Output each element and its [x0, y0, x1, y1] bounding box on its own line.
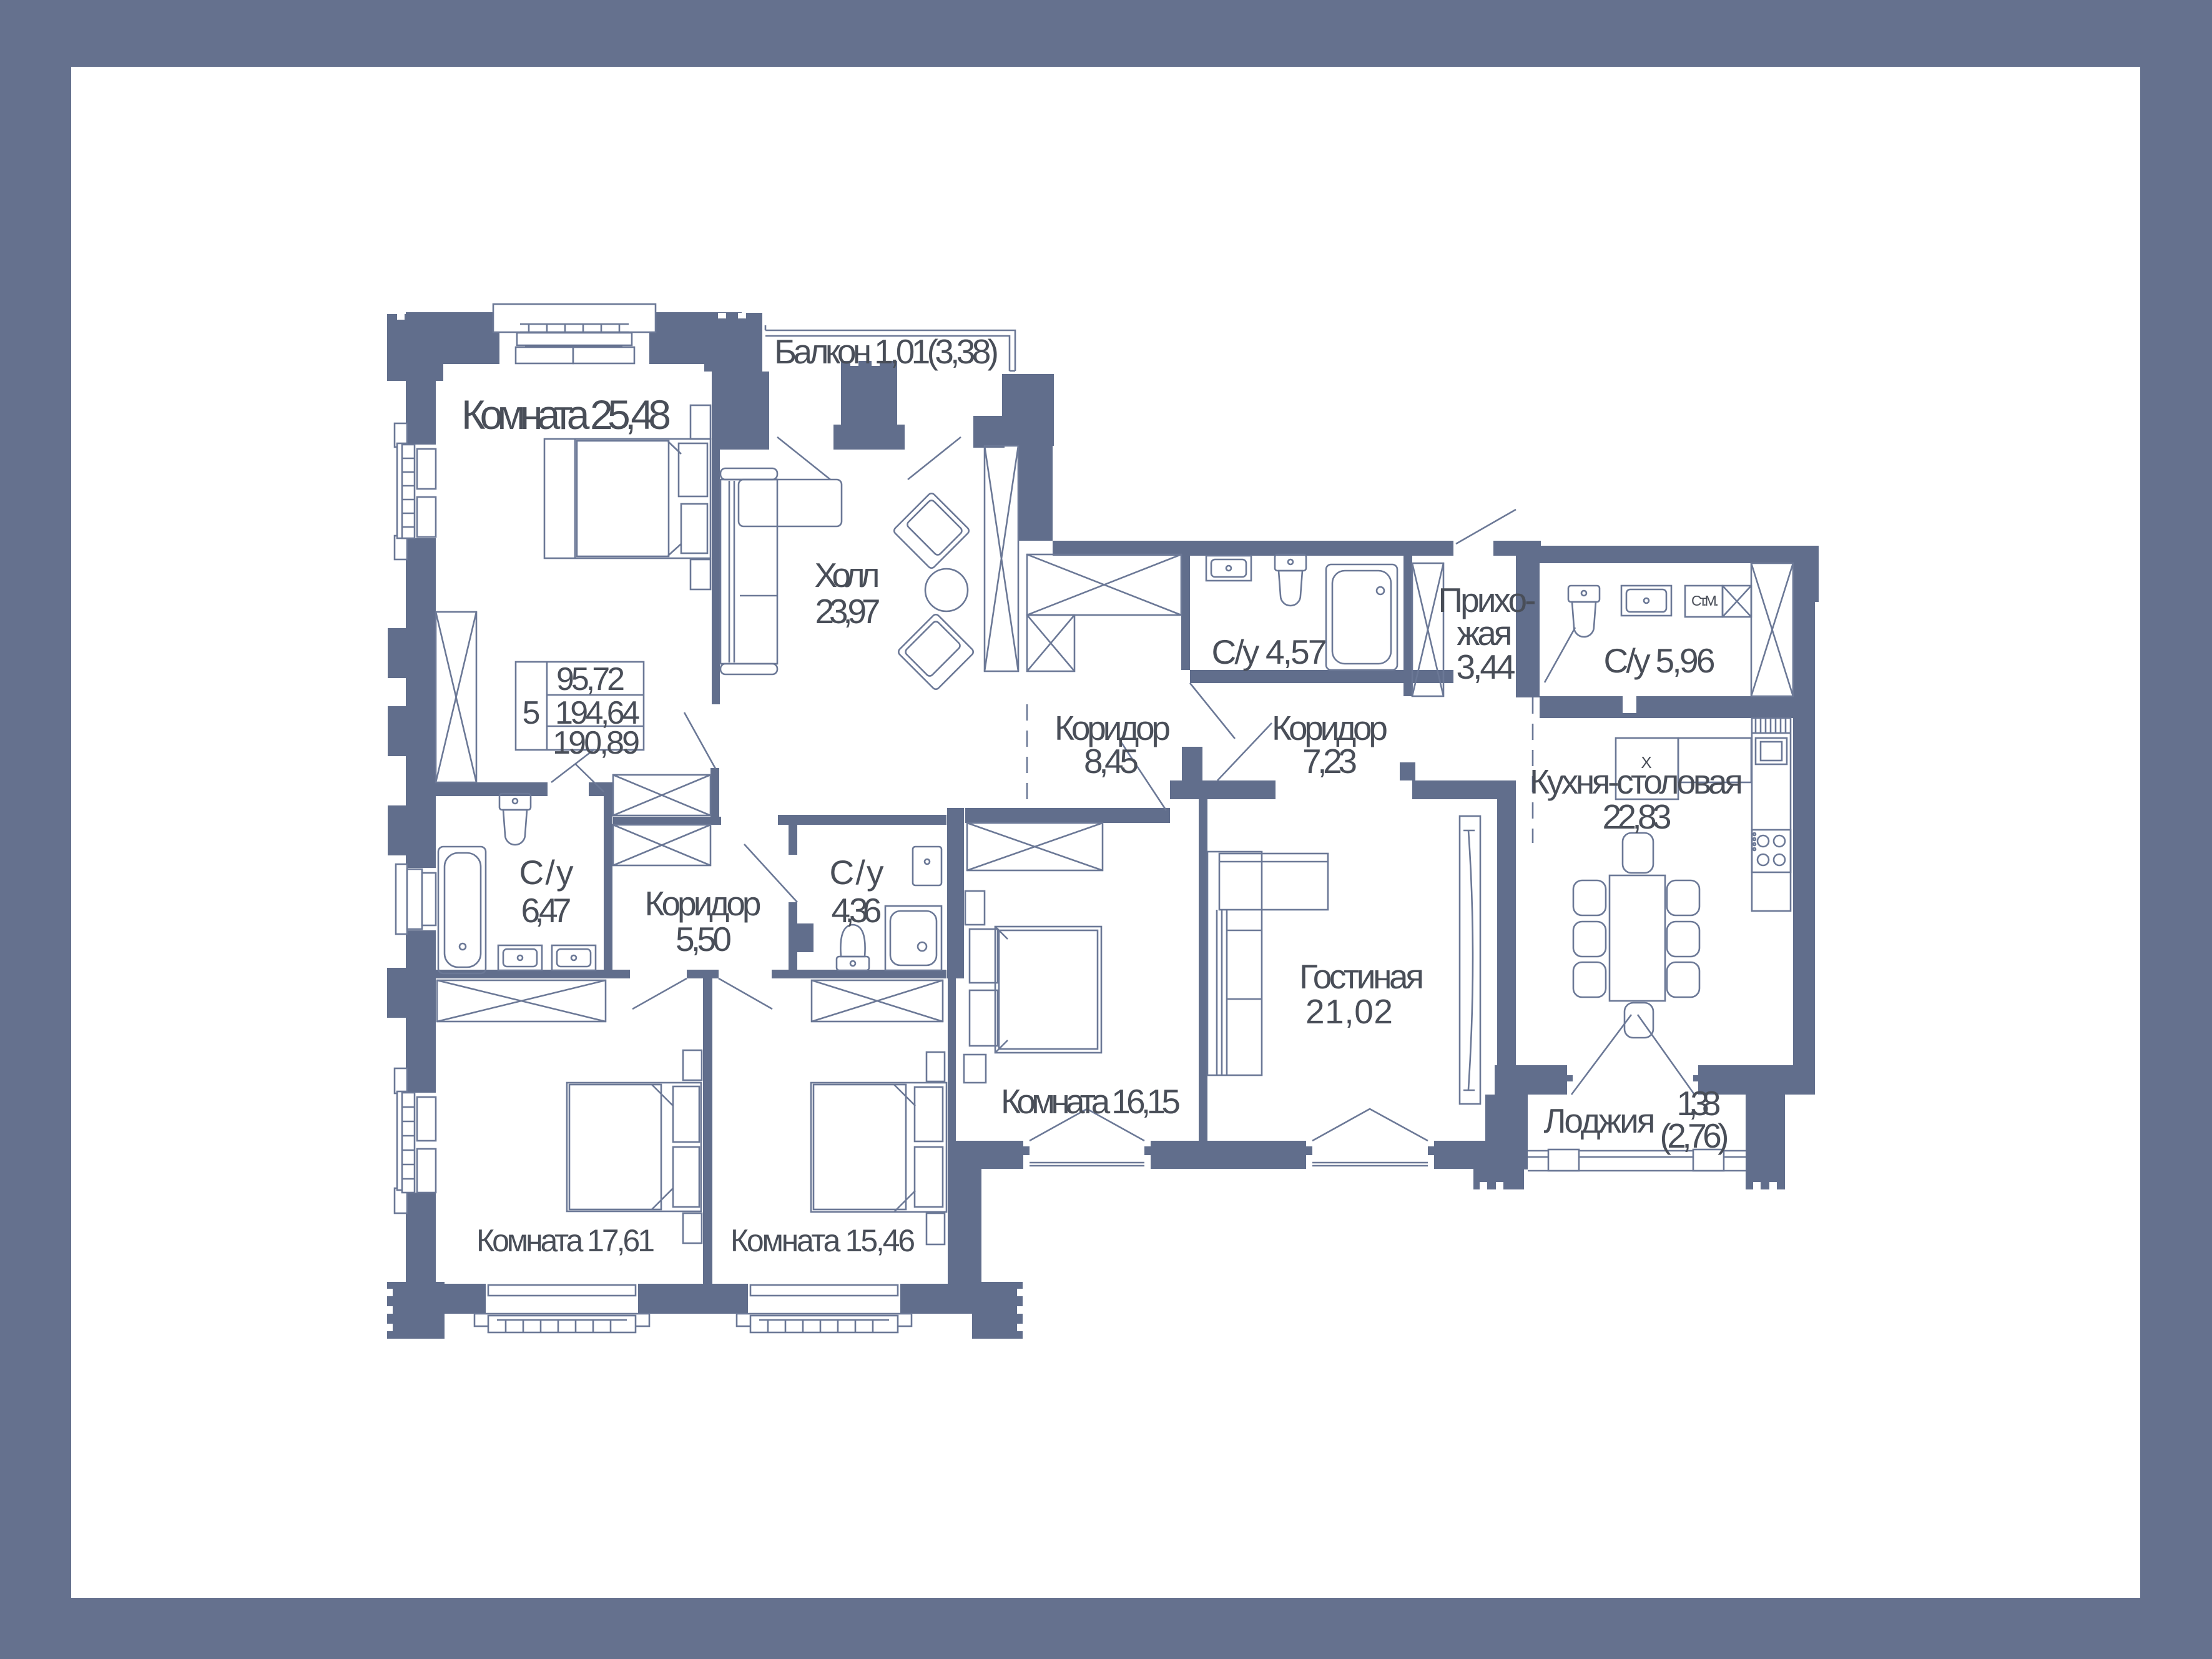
svg-text:6,47: 6,47 [521, 891, 572, 930]
svg-text:Кухня-столовая: Кухня-столовая [1530, 762, 1743, 801]
svg-text:7,23: 7,23 [1302, 742, 1357, 780]
svg-text:8,45: 8,45 [1084, 742, 1139, 780]
svg-text:Комната 16,15: Комната 16,15 [1001, 1082, 1181, 1121]
svg-text:22,83: 22,83 [1603, 797, 1672, 836]
svg-text:Ст.М.: Ст.М. [1691, 593, 1719, 609]
svg-text:3,44: 3,44 [1457, 647, 1516, 686]
svg-text:4,36: 4,36 [832, 891, 882, 930]
svg-text:С/у 4,57: С/у 4,57 [1212, 633, 1327, 671]
svg-text:Балкон 1,01(3,38): Балкон 1,01(3,38) [774, 332, 999, 371]
svg-text:Комната 17,61: Комната 17,61 [476, 1223, 655, 1258]
svg-text:5: 5 [523, 695, 541, 731]
svg-text:Коридор: Коридор [645, 884, 762, 923]
svg-text:21,02: 21,02 [1305, 992, 1393, 1031]
svg-text:С/у: С/у [830, 853, 885, 892]
svg-text:Холл: Холл [815, 556, 880, 594]
svg-text:Лоджия: Лоджия [1544, 1101, 1656, 1140]
svg-text:жая: жая [1457, 614, 1513, 652]
svg-text:Гостиная: Гостиная [1299, 957, 1424, 996]
svg-text:Комната 15,46: Комната 15,46 [730, 1223, 915, 1258]
svg-text:23,97: 23,97 [815, 592, 881, 631]
svg-text:Комната 25,48: Комната 25,48 [461, 391, 671, 438]
svg-text:5,50: 5,50 [676, 920, 732, 958]
svg-text:(2,76): (2,76) [1660, 1116, 1729, 1155]
svg-text:X: X [1641, 753, 1651, 772]
svg-text:190,89: 190,89 [553, 725, 640, 761]
svg-text:С/у: С/у [519, 853, 574, 892]
svg-text:С/у 5,96: С/у 5,96 [1604, 641, 1716, 680]
svg-text:95,72: 95,72 [556, 661, 625, 697]
